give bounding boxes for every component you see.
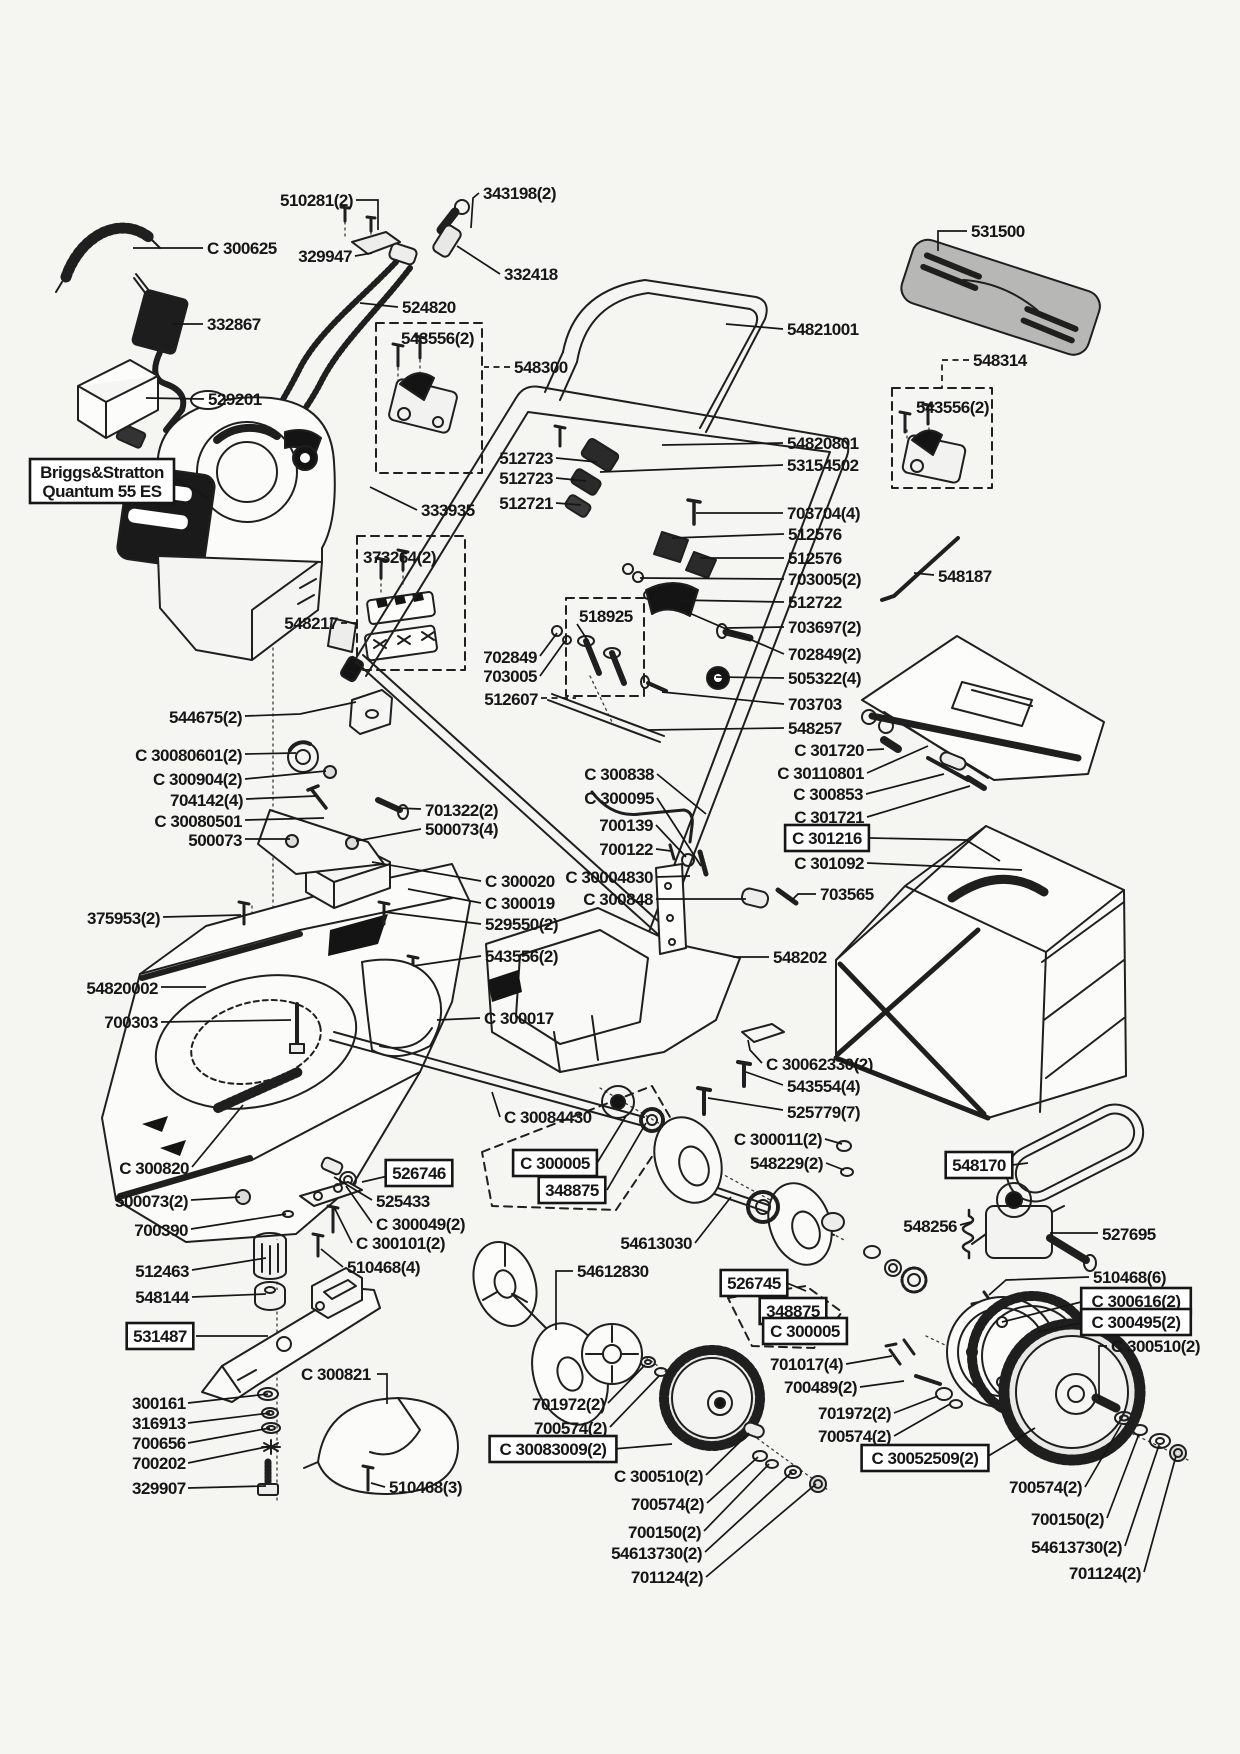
leader-line <box>707 1457 758 1503</box>
svg-text:703005(2): 703005(2) <box>788 570 861 589</box>
svg-text:C 30083009(2): C 30083009(2) <box>500 1440 607 1459</box>
svg-text:531487: 531487 <box>133 1327 187 1346</box>
svg-text:C 300510(2): C 300510(2) <box>1111 1337 1200 1356</box>
svg-text:700139: 700139 <box>599 816 653 835</box>
part-label-boxed: 526745 <box>721 1270 788 1296</box>
svg-text:525779(7): 525779(7) <box>787 1103 860 1122</box>
svg-text:703697(2): 703697(2) <box>788 618 861 637</box>
leader-line <box>188 1446 271 1463</box>
svg-text:500073: 500073 <box>188 831 242 850</box>
leader-line <box>540 641 565 676</box>
part-label: 700202 <box>132 1454 186 1473</box>
part-label: 54613730(2) <box>1031 1538 1122 1557</box>
svg-text:54820801: 54820801 <box>787 434 859 453</box>
part-label: C 30062330(2) <box>766 1055 873 1074</box>
svg-text:701972(2): 701972(2) <box>532 1395 605 1414</box>
leader-line <box>556 1271 573 1330</box>
part-label: 701017(4) <box>770 1355 843 1374</box>
svg-text:316913: 316913 <box>132 1414 186 1433</box>
leader-line <box>188 1428 270 1443</box>
part-label: 703565 <box>820 885 874 904</box>
part-label: 543556(2) <box>916 398 989 417</box>
leader-line <box>245 753 296 754</box>
leader-line <box>600 465 783 472</box>
svg-text:C 300510(2): C 300510(2) <box>614 1467 703 1486</box>
svg-text:700390: 700390 <box>134 1221 188 1240</box>
svg-text:329907: 329907 <box>132 1479 186 1498</box>
leader-line <box>321 1249 343 1267</box>
leader-line <box>748 1040 762 1063</box>
part-label: 300161 <box>132 1394 186 1413</box>
part-label: 703005 <box>483 667 537 686</box>
svg-text:C 300625: C 300625 <box>207 239 277 258</box>
part-label: 53154502 <box>787 456 859 475</box>
part-label: 510281(2) <box>280 191 353 210</box>
svg-text:C 300049(2): C 300049(2) <box>376 1215 465 1234</box>
part-label: 544675(2) <box>169 708 242 727</box>
svg-text:543556(2): 543556(2) <box>485 947 558 966</box>
leader-line <box>245 818 324 820</box>
leader-line <box>1012 1163 1028 1165</box>
part-label: 54612830 <box>577 1262 649 1281</box>
part-label: 316913 <box>132 1414 186 1433</box>
svg-text:54820002: 54820002 <box>86 979 158 998</box>
part-label: 54821001 <box>787 320 859 339</box>
part-label: 543554(4) <box>787 1077 860 1096</box>
leader-line <box>457 246 500 274</box>
svg-text:500073(4): 500073(4) <box>425 820 498 839</box>
svg-text:C 301720: C 301720 <box>794 741 864 760</box>
leader-line <box>146 398 204 399</box>
part-label: 548144 <box>135 1288 190 1307</box>
svg-text:518925: 518925 <box>579 607 633 626</box>
svg-text:700574(2): 700574(2) <box>818 1427 891 1446</box>
svg-text:704142(4): 704142(4) <box>170 791 243 810</box>
part-label: C 300011(2) <box>734 1130 822 1149</box>
svg-text:701124(2): 701124(2) <box>631 1568 703 1587</box>
part-label: 373264(2) <box>363 548 436 567</box>
throttle-spring-part <box>56 228 160 292</box>
leader-line <box>846 1356 892 1364</box>
part-label: 510468(4) <box>347 1258 420 1277</box>
part-label: C 300510(2) <box>614 1467 703 1486</box>
svg-text:525433: 525433 <box>376 1192 430 1211</box>
leader-line <box>894 1404 950 1436</box>
part-label: 701124(2) <box>631 1568 703 1587</box>
part-label: 329947 <box>298 247 352 266</box>
battery-tray-part <box>78 360 158 438</box>
svg-text:543556(2): 543556(2) <box>401 329 474 348</box>
svg-text:500073(2): 500073(2) <box>115 1192 188 1211</box>
part-label: C 300049(2) <box>376 1215 465 1234</box>
leader-line <box>246 796 316 799</box>
svg-text:703704(4): 703704(4) <box>787 504 860 523</box>
leader-line <box>662 443 783 445</box>
part-label: C 300625 <box>207 239 277 258</box>
svg-text:548314: 548314 <box>973 351 1028 370</box>
svg-text:543556(2): 543556(2) <box>916 398 989 417</box>
svg-text:548257: 548257 <box>788 719 842 738</box>
part-label: 54820002 <box>86 979 158 998</box>
svg-text:C 300848: C 300848 <box>583 890 653 909</box>
part-label: 329907 <box>132 1479 186 1498</box>
leader-line <box>726 627 784 628</box>
leader-line <box>613 1444 672 1449</box>
part-label: C 300020 <box>485 872 555 891</box>
part-label: 512576 <box>788 549 842 568</box>
part-label-boxed: C 300005 <box>763 1318 847 1344</box>
leader-line <box>607 1123 646 1190</box>
part-label: 701972(2) <box>532 1395 605 1414</box>
svg-text:703565: 703565 <box>820 885 874 904</box>
leader-line <box>396 808 421 809</box>
svg-text:C 300853: C 300853 <box>793 785 863 804</box>
part-label: 701124(2) <box>1069 1564 1141 1583</box>
leader-line <box>334 1207 352 1243</box>
svg-text:54613730(2): 54613730(2) <box>611 1544 702 1563</box>
svg-text:702849: 702849 <box>483 648 537 667</box>
svg-text:C 301216: C 301216 <box>792 829 862 848</box>
svg-text:C 301092: C 301092 <box>794 854 864 873</box>
part-label: 529550(2) <box>485 915 558 934</box>
svg-text:C 300005: C 300005 <box>770 1322 840 1341</box>
svg-text:529550(2): 529550(2) <box>485 915 558 934</box>
part-label: 524820 <box>402 298 456 317</box>
svg-text:701972(2): 701972(2) <box>818 1404 891 1423</box>
leader-line <box>826 1163 844 1170</box>
part-label: 700139 <box>599 816 653 835</box>
part-label: 512607 <box>484 690 538 709</box>
svg-text:53154502: 53154502 <box>787 456 859 475</box>
part-label: 512723 <box>499 469 553 488</box>
leader-line <box>866 774 944 794</box>
part-label: C 300095 <box>584 789 654 808</box>
part-label: 701972(2) <box>818 1404 891 1423</box>
part-label: 700390 <box>134 1221 188 1240</box>
svg-text:700150(2): 700150(2) <box>628 1523 701 1542</box>
part-label: C 300101(2) <box>356 1234 445 1253</box>
leader-line <box>706 1484 816 1577</box>
part-label: C 300848 <box>583 890 653 909</box>
upper-handle <box>545 280 767 432</box>
handle-bracket-assembly <box>258 690 408 874</box>
svg-text:701322(2): 701322(2) <box>425 801 498 820</box>
svg-text:C 30080501: C 30080501 <box>154 812 242 831</box>
svg-text:529201: 529201 <box>208 390 262 409</box>
part-label: 703697(2) <box>788 618 861 637</box>
part-label: 548256 <box>903 1217 957 1236</box>
svg-text:512576: 512576 <box>788 525 842 544</box>
leader-line <box>708 1098 783 1110</box>
svg-text:C 300011(2): C 300011(2) <box>734 1130 822 1149</box>
leader-line <box>597 1116 626 1163</box>
part-label: 54613030 <box>620 1234 692 1253</box>
svg-text:C 30110801: C 30110801 <box>777 764 864 783</box>
svg-text:524820: 524820 <box>402 298 456 317</box>
svg-text:375953(2): 375953(2) <box>87 909 160 928</box>
part-label: 700574(2) <box>631 1495 704 1514</box>
part-label: 703005(2) <box>788 570 861 589</box>
svg-text:700303: 700303 <box>104 1013 158 1032</box>
leader-line <box>540 633 557 656</box>
part-label-boxed: 526746 <box>386 1160 453 1186</box>
part-label: 702849 <box>483 648 537 667</box>
leader-line <box>370 487 417 510</box>
svg-text:548256: 548256 <box>903 1217 957 1236</box>
part-label: 529201 <box>208 390 262 409</box>
svg-text:510468(3): 510468(3) <box>389 1478 462 1497</box>
svg-text:C 30004830: C 30004830 <box>565 868 653 887</box>
svg-text:510281(2): 510281(2) <box>280 191 353 210</box>
svg-text:512607: 512607 <box>484 690 538 709</box>
part-label: 333935 <box>421 501 475 520</box>
svg-text:512463: 512463 <box>135 1262 189 1281</box>
leader-line <box>188 1486 266 1488</box>
part-label: 700574(2) <box>818 1427 891 1446</box>
svg-text:700574(2): 700574(2) <box>1009 1478 1082 1497</box>
leader-line <box>471 193 479 228</box>
part-label-boxed: C 30052509(2) <box>862 1445 989 1471</box>
svg-text:C 300020: C 300020 <box>485 872 555 891</box>
svg-text:543554(4): 543554(4) <box>787 1077 860 1096</box>
svg-text:C 300101(2): C 300101(2) <box>356 1234 445 1253</box>
svg-text:329947: 329947 <box>298 247 352 266</box>
part-label: 703703 <box>788 695 842 714</box>
part-label: C 300904(2) <box>153 770 242 789</box>
leader-line <box>695 1197 731 1243</box>
svg-text:C 30080601(2): C 30080601(2) <box>135 746 242 765</box>
part-label: 704142(4) <box>170 791 243 810</box>
parts-diagram-page: 510281(2)C 30062532994733286752920134319… <box>0 0 1240 1754</box>
gearbox <box>864 1183 1096 1292</box>
svg-text:C 300019: C 300019 <box>485 894 555 913</box>
part-label: C 30080601(2) <box>135 746 242 765</box>
svg-text:527695: 527695 <box>1102 1225 1156 1244</box>
parts-diagram: 510281(2)C 30062532994733286752920134319… <box>0 0 1240 1754</box>
svg-text:700656: 700656 <box>132 1434 186 1453</box>
part-label: 543556(2) <box>485 947 558 966</box>
svg-text:701017(4): 701017(4) <box>770 1355 843 1374</box>
svg-text:701124(2): 701124(2) <box>1069 1564 1141 1583</box>
svg-text:54613030: 54613030 <box>620 1234 692 1253</box>
leader-line <box>662 692 784 704</box>
part-label: 525433 <box>376 1192 430 1211</box>
part-label: 548257 <box>788 719 842 738</box>
part-label: 343198(2) <box>483 184 556 203</box>
part-label-boxed: C 30083009(2) <box>490 1436 617 1462</box>
svg-text:512721: 512721 <box>499 494 553 513</box>
part-label: C 300853 <box>793 785 863 804</box>
part-label: 700656 <box>132 1434 186 1453</box>
part-label: 500073 <box>188 831 242 850</box>
part-label: C 300017 <box>484 1009 554 1028</box>
part-label: 510468(3) <box>389 1478 462 1497</box>
leader-line <box>362 1176 388 1182</box>
part-label: 548314 <box>973 351 1028 370</box>
svg-text:C 300820: C 300820 <box>119 1159 189 1178</box>
part-label: 543556(2) <box>401 329 474 348</box>
part-label-boxed: Briggs&StrattonQuantum 55 ES <box>30 459 174 503</box>
leader-line <box>1125 1445 1159 1546</box>
part-label: 548187 <box>938 567 992 586</box>
svg-text:C 300095: C 300095 <box>584 789 654 808</box>
part-label: C 300821 <box>301 1365 371 1384</box>
leader-line <box>640 578 784 579</box>
part-label: 510468(6) <box>1093 1268 1166 1287</box>
part-label: 700489(2) <box>784 1378 857 1397</box>
svg-text:C 30084430: C 30084430 <box>504 1108 592 1127</box>
svg-text:531500: 531500 <box>971 222 1025 241</box>
svg-text:510468(6): 510468(6) <box>1093 1268 1166 1287</box>
part-label: C 30084430 <box>504 1108 592 1127</box>
part-label: C 300510(2) <box>1111 1337 1200 1356</box>
part-label: 548217 <box>284 614 338 633</box>
part-label: 54613730(2) <box>611 1544 702 1563</box>
svg-text:548217: 548217 <box>284 614 338 633</box>
svg-text:332418: 332418 <box>504 265 558 284</box>
part-label: 548202 <box>773 948 827 967</box>
part-label: 531500 <box>971 222 1025 241</box>
leader-line <box>245 771 326 779</box>
svg-text:C 300821: C 300821 <box>301 1365 371 1384</box>
part-label: 518925 <box>579 607 633 626</box>
svg-text:C 300495(2): C 300495(2) <box>1091 1313 1180 1332</box>
svg-text:373264(2): 373264(2) <box>363 548 436 567</box>
part-label: 500073(4) <box>425 820 498 839</box>
part-label: 700150(2) <box>628 1523 701 1542</box>
svg-text:C 300904(2): C 300904(2) <box>153 770 242 789</box>
svg-text:700574(2): 700574(2) <box>631 1495 704 1514</box>
part-label: 701322(2) <box>425 801 498 820</box>
svg-text:703005: 703005 <box>483 667 537 686</box>
part-label-boxed: 531487 <box>127 1323 194 1349</box>
svg-text:C 30052509(2): C 30052509(2) <box>872 1449 979 1468</box>
svg-text:544675(2): 544675(2) <box>169 708 242 727</box>
part-label: 703704(4) <box>787 504 860 523</box>
part-label-boxed: 348875 <box>539 1177 606 1203</box>
harness-bracket-part <box>341 207 418 266</box>
leader-line <box>656 876 690 877</box>
part-label: C 30004830 <box>565 868 653 887</box>
part-label: C 30110801 <box>777 764 864 783</box>
leader-line <box>356 200 378 230</box>
part-label-boxed: C 300005 <box>513 1150 597 1176</box>
svg-text:700489(2): 700489(2) <box>784 1378 857 1397</box>
svg-text:300161: 300161 <box>132 1394 186 1413</box>
svg-text:512576: 512576 <box>788 549 842 568</box>
ignition-coil-part <box>388 336 458 434</box>
part-label: C 301720 <box>794 741 864 760</box>
svg-text:548144: 548144 <box>135 1288 190 1307</box>
svg-text:548300: 548300 <box>514 358 568 377</box>
svg-text:548170: 548170 <box>952 1156 1006 1175</box>
svg-text:C 300005: C 300005 <box>520 1154 590 1173</box>
leader-line <box>188 1413 270 1423</box>
svg-text:348875: 348875 <box>545 1181 599 1200</box>
leader-line <box>656 849 671 851</box>
svg-text:702849(2): 702849(2) <box>788 645 861 664</box>
leader-line <box>894 1396 938 1413</box>
part-label: 512722 <box>788 593 842 612</box>
part-label: C 30080501 <box>154 812 242 831</box>
svg-text:512723: 512723 <box>499 469 553 488</box>
part-label: 512721 <box>499 494 553 513</box>
part-label: 500073(2) <box>115 1192 188 1211</box>
svg-text:703703: 703703 <box>788 695 842 714</box>
svg-text:C 300838: C 300838 <box>584 765 654 784</box>
leader-line <box>672 534 784 538</box>
part-label: C 300838 <box>584 765 654 784</box>
part-label: 375953(2) <box>87 909 160 928</box>
part-label: 332867 <box>207 315 261 334</box>
leader-line <box>860 1381 904 1387</box>
svg-text:700122: 700122 <box>599 840 653 859</box>
part-label-boxed: C 301216 <box>785 825 869 851</box>
part-label: 512723 <box>499 449 553 468</box>
part-label: 527695 <box>1102 1225 1156 1244</box>
part-label: 505322(4) <box>788 669 861 688</box>
leader-line <box>867 749 884 750</box>
leader-line <box>245 702 356 716</box>
leader-line <box>648 728 784 730</box>
part-label: 54820801 <box>787 434 859 453</box>
svg-text:333935: 333935 <box>421 501 475 520</box>
svg-text:343198(2): 343198(2) <box>483 184 556 203</box>
svg-text:C 30062330(2): C 30062330(2) <box>766 1055 873 1074</box>
svg-text:526746: 526746 <box>392 1164 446 1183</box>
svg-text:548202: 548202 <box>773 948 827 967</box>
svg-text:505322(4): 505322(4) <box>788 669 861 688</box>
part-label: 548229(2) <box>750 1154 823 1173</box>
part-label: 702849(2) <box>788 645 861 664</box>
part-label: 525779(7) <box>787 1103 860 1122</box>
svg-text:510468(4): 510468(4) <box>347 1258 420 1277</box>
svg-text:332867: 332867 <box>207 315 261 334</box>
svg-text:526745: 526745 <box>727 1274 781 1293</box>
svg-text:548229(2): 548229(2) <box>750 1154 823 1173</box>
handle-housing-part <box>897 236 1104 359</box>
leader-line <box>356 829 421 841</box>
leader-line <box>492 1092 500 1117</box>
part-label: C 300019 <box>485 894 555 913</box>
drive-belt <box>997 1095 1153 1211</box>
svg-text:548187: 548187 <box>938 567 992 586</box>
part-label: 512576 <box>788 525 842 544</box>
leader-line <box>716 677 784 678</box>
svg-text:700202: 700202 <box>132 1454 186 1473</box>
part-label: C 300820 <box>119 1159 189 1178</box>
svg-text:512723: 512723 <box>499 449 553 468</box>
part-label: 332418 <box>504 265 558 284</box>
svg-text:54821001: 54821001 <box>787 320 859 339</box>
part-label: 512463 <box>135 1262 189 1281</box>
svg-text:54613730(2): 54613730(2) <box>1031 1538 1122 1557</box>
rear-door <box>862 636 1104 788</box>
part-label: 700303 <box>104 1013 158 1032</box>
grass-bag <box>836 826 1126 1118</box>
part-label: C 301092 <box>794 854 864 873</box>
svg-text:700150(2): 700150(2) <box>1031 1510 1104 1529</box>
part-label-boxed: C 300495(2) <box>1081 1309 1191 1335</box>
part-label: 700574(2) <box>1009 1478 1082 1497</box>
leader-line <box>942 360 969 388</box>
svg-text:54612830: 54612830 <box>577 1262 649 1281</box>
part-label: 548300 <box>514 358 568 377</box>
leader-line <box>163 915 241 917</box>
svg-text:C 300017: C 300017 <box>484 1009 554 1028</box>
part-label-boxed: 548170 <box>946 1152 1013 1178</box>
svg-text:Briggs&StrattonQuantum 55 ES: Briggs&StrattonQuantum 55 ES <box>40 463 164 501</box>
